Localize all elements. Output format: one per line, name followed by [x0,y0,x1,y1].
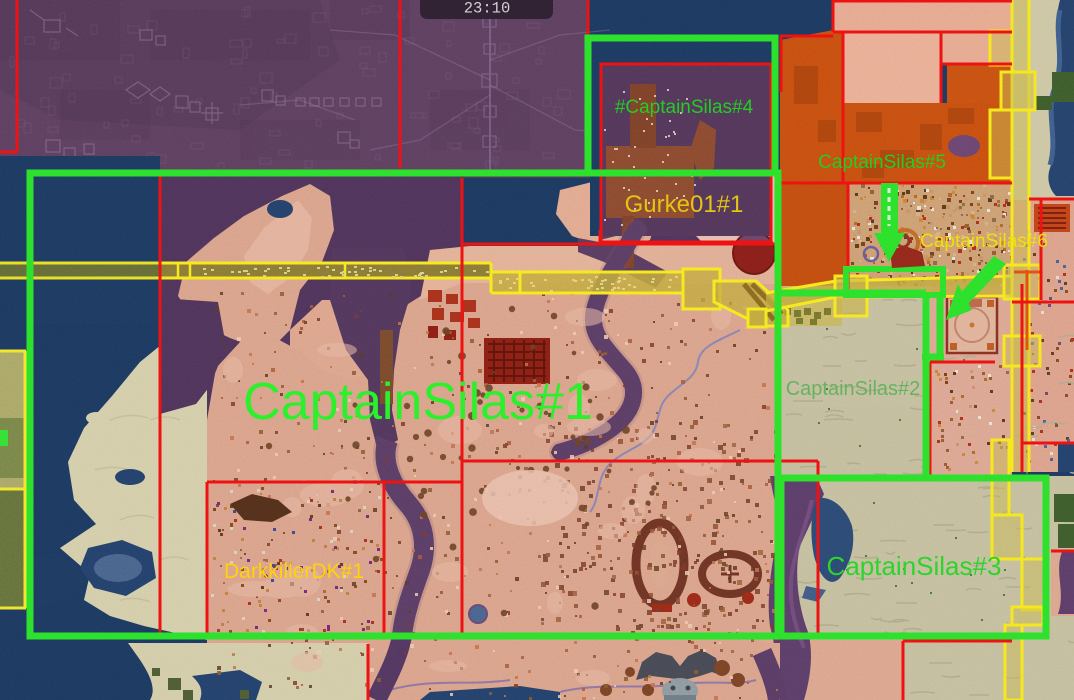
svg-text:CaptainSilas#5: CaptainSilas#5 [818,152,946,173]
svg-text:Gurke01#1: Gurke01#1 [625,191,744,218]
svg-text:CaptainSilas#6: CaptainSilas#6 [920,231,1048,252]
svg-text:23:10: 23:10 [464,0,511,18]
svg-text:CaptainSilas#2: CaptainSilas#2 [786,378,921,400]
svg-text:CaptainSilas#3: CaptainSilas#3 [827,551,1002,581]
svg-text:DarkkillerDK#1: DarkkillerDK#1 [224,560,364,583]
svg-text:CaptainSilas#1: CaptainSilas#1 [243,373,593,431]
svg-text:#CaptainSilas#4: #CaptainSilas#4 [615,97,754,118]
